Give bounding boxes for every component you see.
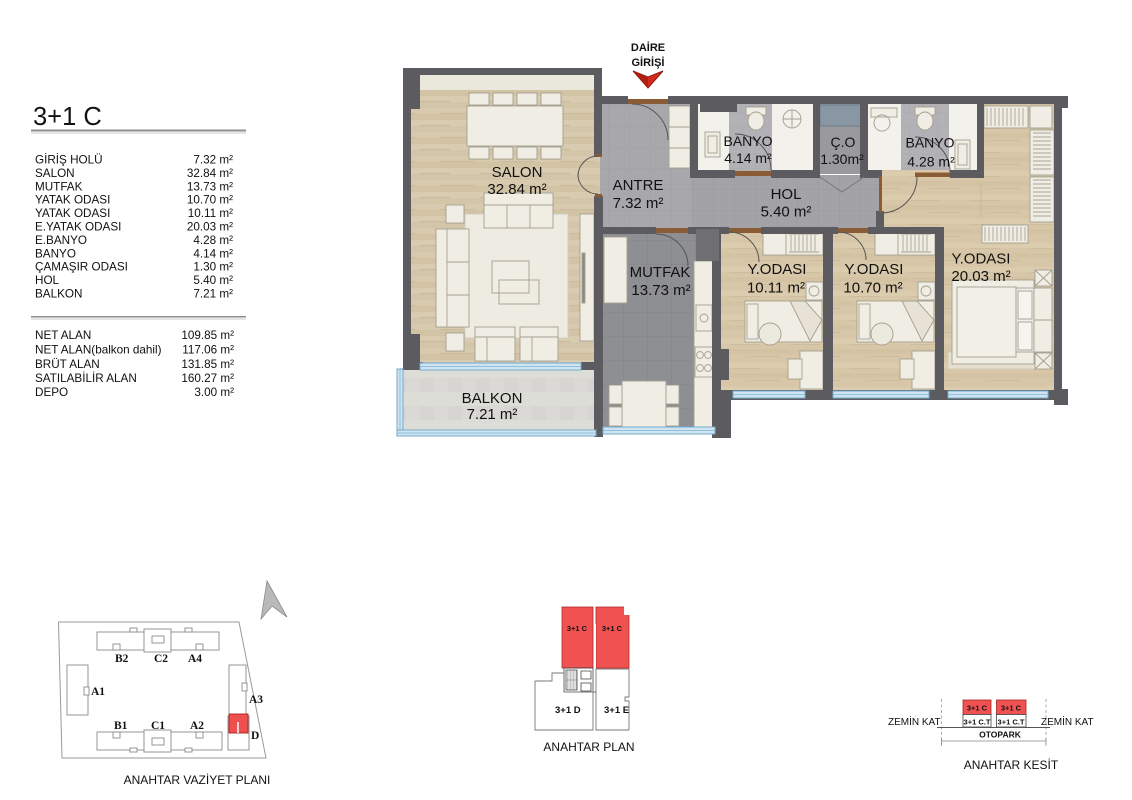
svg-text:Y.ODASI: Y.ODASI [845, 261, 904, 278]
svg-text:ÇAMAŞIR ODASI: ÇAMAŞIR ODASI [35, 261, 128, 274]
svg-text:SALON: SALON [35, 167, 75, 180]
svg-text:3+1 C: 3+1 C [1001, 704, 1022, 713]
svg-text:4.28 m²: 4.28 m² [907, 154, 955, 170]
svg-text:10.11 m²: 10.11 m² [747, 280, 805, 297]
svg-text:ANAHTAR VAZİYET PLANI: ANAHTAR VAZİYET PLANI [124, 773, 271, 787]
svg-text:3+1 C: 3+1 C [33, 103, 102, 131]
svg-text:BRÜT ALAN: BRÜT ALAN [35, 358, 100, 371]
svg-text:3+1 D: 3+1 D [555, 705, 581, 716]
svg-text:BANYO: BANYO [905, 135, 954, 151]
svg-text:3+1 C: 3+1 C [567, 624, 588, 633]
svg-text:BANYO: BANYO [723, 133, 772, 149]
svg-text:GİRİŞ HOLÜ: GİRİŞ HOLÜ [35, 154, 103, 167]
svg-text:YATAK ODASI: YATAK ODASI [35, 207, 110, 220]
svg-text:A1: A1 [91, 686, 105, 698]
svg-text:7.21 m²: 7.21 m² [467, 406, 518, 423]
svg-text:ANTRE: ANTRE [613, 177, 664, 194]
svg-text:OTOPARK: OTOPARK [979, 730, 1022, 740]
svg-text:109.85 m²: 109.85 m² [181, 329, 234, 342]
svg-text:4.28 m²: 4.28 m² [193, 234, 233, 247]
svg-text:7.32 m²: 7.32 m² [613, 195, 664, 212]
svg-text:A4: A4 [188, 653, 202, 665]
svg-text:Ç.O: Ç.O [831, 134, 856, 150]
svg-text:YATAK ODASI: YATAK ODASI [35, 194, 110, 207]
svg-text:GİRİŞİ: GİRİŞİ [631, 56, 664, 69]
svg-text:3+1 C.T: 3+1 C.T [964, 718, 991, 727]
svg-text:10.70 m²: 10.70 m² [843, 280, 902, 297]
svg-text:MUTFAK: MUTFAK [35, 180, 83, 193]
svg-text:7.21 m²: 7.21 m² [193, 288, 233, 301]
svg-text:20.03 m²: 20.03 m² [187, 221, 233, 234]
svg-text:E.YATAK ODASI: E.YATAK ODASI [35, 221, 121, 234]
svg-text:C1: C1 [151, 720, 165, 732]
svg-text:A2: A2 [190, 720, 204, 732]
svg-text:NET ALAN: NET ALAN [35, 329, 91, 342]
svg-text:7.32 m²: 7.32 m² [193, 154, 233, 167]
svg-text:C2: C2 [154, 653, 168, 665]
svg-text:ZEMİN KAT: ZEMİN KAT [1041, 715, 1094, 728]
svg-text:E.BANYO: E.BANYO [35, 234, 87, 247]
svg-text:Y.ODASI: Y.ODASI [952, 251, 1011, 268]
svg-text:ANAHTAR KESİT: ANAHTAR KESİT [964, 758, 1059, 772]
svg-text:BANYO: BANYO [35, 247, 76, 260]
svg-text:MUTFAK: MUTFAK [630, 264, 691, 281]
svg-text:1.30 m²: 1.30 m² [193, 261, 233, 274]
svg-text:13.73 m²: 13.73 m² [187, 180, 233, 193]
svg-text:B1: B1 [114, 720, 128, 732]
svg-text:ZEMİN KAT: ZEMİN KAT [888, 715, 941, 728]
svg-text:13.73 m²: 13.73 m² [631, 282, 690, 299]
svg-text:3+1 E: 3+1 E [604, 705, 629, 716]
svg-text:160.27 m²: 160.27 m² [181, 372, 234, 385]
svg-text:SALON: SALON [492, 164, 543, 181]
svg-text:DAİRE: DAİRE [631, 41, 665, 54]
svg-text:3+1 C: 3+1 C [602, 624, 623, 633]
svg-text:HOL: HOL [35, 274, 60, 287]
svg-text:Y.ODASI: Y.ODASI [748, 261, 807, 278]
svg-text:3.00 m²: 3.00 m² [194, 386, 234, 399]
svg-text:20.03 m²: 20.03 m² [951, 268, 1010, 285]
svg-text:3+1 C.T: 3+1 C.T [998, 718, 1025, 727]
svg-text:BALKON: BALKON [35, 288, 82, 301]
svg-text:131.85 m²: 131.85 m² [181, 358, 234, 371]
svg-text:HOL: HOL [771, 186, 802, 203]
svg-text:1.30m²: 1.30m² [820, 151, 864, 167]
svg-text:32.84 m²: 32.84 m² [187, 167, 233, 180]
svg-text:BALKON: BALKON [462, 390, 523, 407]
svg-text:4.14 m²: 4.14 m² [193, 247, 233, 260]
svg-text:5.40 m²: 5.40 m² [193, 274, 233, 287]
svg-text:NET ALAN(balkon dahil): NET ALAN(balkon dahil) [35, 344, 162, 357]
svg-text:D: D [251, 730, 259, 742]
svg-text:ANAHTAR PLAN: ANAHTAR PLAN [543, 740, 634, 754]
svg-text:DEPO: DEPO [35, 386, 68, 399]
svg-text:10.70 m²: 10.70 m² [187, 194, 233, 207]
svg-text:10.11 m²: 10.11 m² [188, 207, 233, 220]
svg-text:SATILABİLİR ALAN: SATILABİLİR ALAN [35, 372, 137, 385]
svg-text:3+1 C: 3+1 C [967, 704, 988, 713]
svg-text:4.14 m²: 4.14 m² [724, 150, 772, 166]
svg-text:117.06 m²: 117.06 m² [182, 344, 234, 357]
svg-text:5.40 m²: 5.40 m² [761, 204, 812, 221]
svg-text:32.84 m²: 32.84 m² [487, 181, 546, 198]
svg-text:A3: A3 [249, 694, 263, 706]
svg-text:B2: B2 [115, 653, 129, 665]
